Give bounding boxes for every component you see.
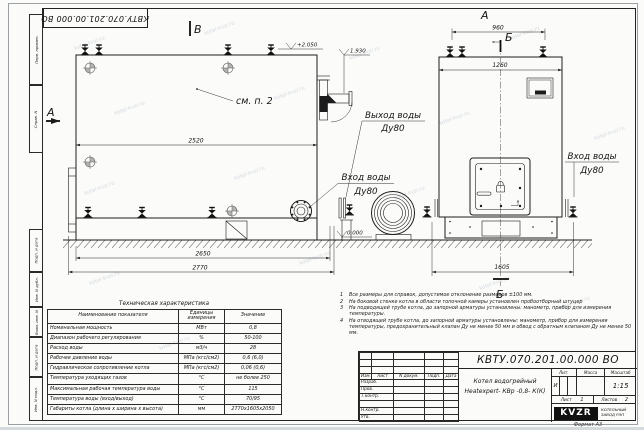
note-text: На боковой стенке котла в области топочн… bbox=[349, 299, 632, 305]
cell: 70/95 bbox=[225, 394, 282, 404]
margin-box-inv-podl: Инв. N подл. bbox=[29, 377, 43, 421]
title-block-right: Лит. Масса Масштаб И 1:15 Лист 1 bbox=[551, 369, 636, 422]
table-row: Максимальная рабочая температура воды°С1… bbox=[48, 384, 282, 394]
masshtab-label: Масштаб bbox=[605, 369, 636, 377]
cell: °С bbox=[179, 384, 225, 394]
margin-box-perv-primen: Перв. примен. bbox=[29, 14, 43, 85]
product-name-line2: Heatexpert- КВр -0,8- К(К) bbox=[459, 387, 551, 397]
list-value: 1 bbox=[580, 397, 583, 403]
note-number: 2 bbox=[338, 299, 349, 305]
cell: Расход воды bbox=[48, 343, 179, 353]
table-row: Рабочее давление водыМПа (кгс/см2)0,6 (6… bbox=[48, 354, 282, 364]
margin-box-vzam-inv: Взам. инв. N bbox=[29, 307, 43, 337]
product-name: Котел водогрейный Heatexpert- КВр -0,8- … bbox=[458, 369, 551, 422]
top-stamp-number: КВТУ.070.201.00.000 ВО bbox=[41, 14, 149, 23]
margin-box-podp-data-1: Подп. и дата bbox=[29, 229, 43, 272]
cell: Гидравлическое сопротивление котла bbox=[48, 364, 179, 374]
note-number: 3 bbox=[338, 305, 349, 317]
doc-number: КВТУ.070.201.00.000 ВО bbox=[458, 352, 637, 369]
cell: не более 250 bbox=[225, 374, 282, 384]
cell: Температура уходящих газов bbox=[48, 374, 179, 384]
margin-box-podp-data-2: Подп. и дата bbox=[29, 337, 43, 377]
sheets-total: Листов 2 bbox=[594, 396, 636, 404]
tech-table: Наименование показателя Единицы измерени… bbox=[47, 309, 282, 416]
notes: 1Все размеры для справок, допустимое отк… bbox=[338, 292, 632, 336]
company-block: KVZR КОТЕЛЬНЫЙ ЗАВОД РЭП bbox=[552, 404, 636, 422]
note-number: 1 bbox=[338, 292, 349, 298]
note-text: Все размеры для справок, допустимое откл… bbox=[349, 292, 632, 298]
list-label: Лист bbox=[561, 397, 572, 402]
margin-box-inv-dubl: Инв. N дубл. bbox=[29, 272, 43, 307]
margin-label: Перв. примен. bbox=[34, 35, 39, 64]
note-item: 3На подводящей трубе котла, до запорной … bbox=[338, 305, 632, 317]
cell: МПа (кгс/см2) bbox=[179, 364, 225, 374]
col-izm: Изм. bbox=[360, 374, 372, 380]
cell: Габариты котла (длина х ширина х высота) bbox=[48, 405, 179, 415]
lit-value: И bbox=[552, 377, 560, 395]
table-row: Температура воды (вход/выход)°С70/95 bbox=[48, 394, 282, 404]
row-razrab: Разраб. bbox=[360, 379, 394, 386]
table-row: Габариты котла (длина х ширина х высота)… bbox=[48, 405, 282, 415]
note-item: 1Все размеры для справок, допустимое отк… bbox=[338, 292, 632, 298]
lit-label: Лит. bbox=[552, 369, 577, 377]
title-block-left-grid: Изм. Лист N докум. Подп. Дата Разраб. Пр… bbox=[359, 352, 459, 422]
cell: 0,6 (6,0) bbox=[225, 354, 282, 364]
margin-label: Подп. и дата bbox=[34, 238, 39, 264]
cell: Диапазон рабочего регулирования bbox=[48, 333, 179, 343]
row-prov: Пров. bbox=[360, 386, 394, 393]
margin-label: Инв. N дубл. bbox=[34, 277, 39, 302]
scale-value: 1:15 bbox=[605, 377, 636, 396]
margin-label: Подп. и дата bbox=[34, 344, 39, 370]
cell: 28 bbox=[225, 343, 282, 353]
cell: Рабочее давление воды bbox=[48, 354, 179, 364]
row-tkontr: Т.контр. bbox=[360, 393, 394, 400]
company-name: КОТЕЛЬНЫЙ ЗАВОД РЭП bbox=[601, 408, 626, 417]
margin-label: Справ. N bbox=[34, 110, 39, 127]
col-name: Наименование показателя bbox=[48, 309, 179, 323]
table-row: Расход водым3/ч28 bbox=[48, 343, 282, 353]
note-text: На подводящей трубе котла, до запорной а… bbox=[349, 305, 632, 317]
cell: Температура воды (вход/выход) bbox=[48, 394, 179, 404]
cell: Максимальная рабочая температура воды bbox=[48, 384, 179, 394]
drawing-sheet: Перв. примен. Справ. N Подп. и дата Инв.… bbox=[0, 0, 644, 430]
table-row: Гидравлическое сопротивление котлаМПа (к… bbox=[48, 364, 282, 374]
row-utv: Утв. bbox=[360, 414, 394, 421]
tech-table-header: Наименование показателя Единицы измерени… bbox=[48, 309, 282, 323]
col-value: Значение bbox=[225, 309, 282, 323]
margin-label: Инв. N подл. bbox=[34, 386, 39, 411]
row-nkontr: Н.контр. bbox=[360, 407, 394, 414]
product-name-line1: Котел водогрейный bbox=[459, 377, 551, 387]
listov-value: 2 bbox=[625, 397, 628, 403]
massa-value bbox=[577, 377, 606, 396]
table-row: Диапазон рабочего регулирования%50-100 bbox=[48, 333, 282, 343]
title-block: КВТУ.070.201.00.000 ВО Изм. Лист N докум… bbox=[358, 351, 636, 421]
cell: 115 bbox=[225, 384, 282, 394]
note-text: На отводящей трубе котла, до запорной ар… bbox=[349, 318, 632, 336]
kvzr-logo: KVZR bbox=[554, 407, 598, 420]
cell: °С bbox=[179, 374, 225, 384]
cell: 50-100 bbox=[225, 333, 282, 343]
col-units: Единицы измерения bbox=[179, 309, 225, 323]
tech-table-title: Техническая характеристика bbox=[47, 301, 281, 307]
margin-box-sprav: Справ. N bbox=[29, 85, 43, 153]
cell: МВт bbox=[179, 323, 225, 333]
cell: мм bbox=[179, 405, 225, 415]
cell: °С bbox=[179, 394, 225, 404]
note-item: 4На отводящей трубе котла, до запорной а… bbox=[338, 318, 632, 336]
table-row: Номинальная мощностьМВт0,8 bbox=[48, 323, 282, 333]
cell: 2770х1605х2050 bbox=[225, 405, 282, 415]
table-row: Температура уходящих газов°Сне более 250 bbox=[48, 374, 282, 384]
note-item: 2На боковой стенке котла в области топоч… bbox=[338, 299, 632, 305]
cell: 0,06 (0,6) bbox=[225, 364, 282, 374]
massa-label: Масса bbox=[577, 369, 606, 377]
top-stamp: КВТУ.070.201.00.000 ВО bbox=[43, 8, 148, 28]
company-line2: ЗАВОД РЭП bbox=[601, 413, 626, 418]
cell: Номинальная мощность bbox=[48, 323, 179, 333]
cell: 0,8 bbox=[225, 323, 282, 333]
cell: % bbox=[179, 333, 225, 343]
col-data: Дата bbox=[444, 374, 459, 380]
lit-cells: И bbox=[552, 377, 577, 396]
tech-characteristics: Техническая характеристика Наименование … bbox=[47, 301, 281, 415]
cell: м3/ч bbox=[179, 343, 225, 353]
margin-label: Взам. инв. N bbox=[34, 310, 39, 335]
sheet-number: Лист 1 bbox=[552, 396, 594, 404]
listov-label: Листов bbox=[601, 397, 617, 402]
note-number: 4 bbox=[338, 318, 349, 336]
cell: МПа (кгс/см2) bbox=[179, 354, 225, 364]
